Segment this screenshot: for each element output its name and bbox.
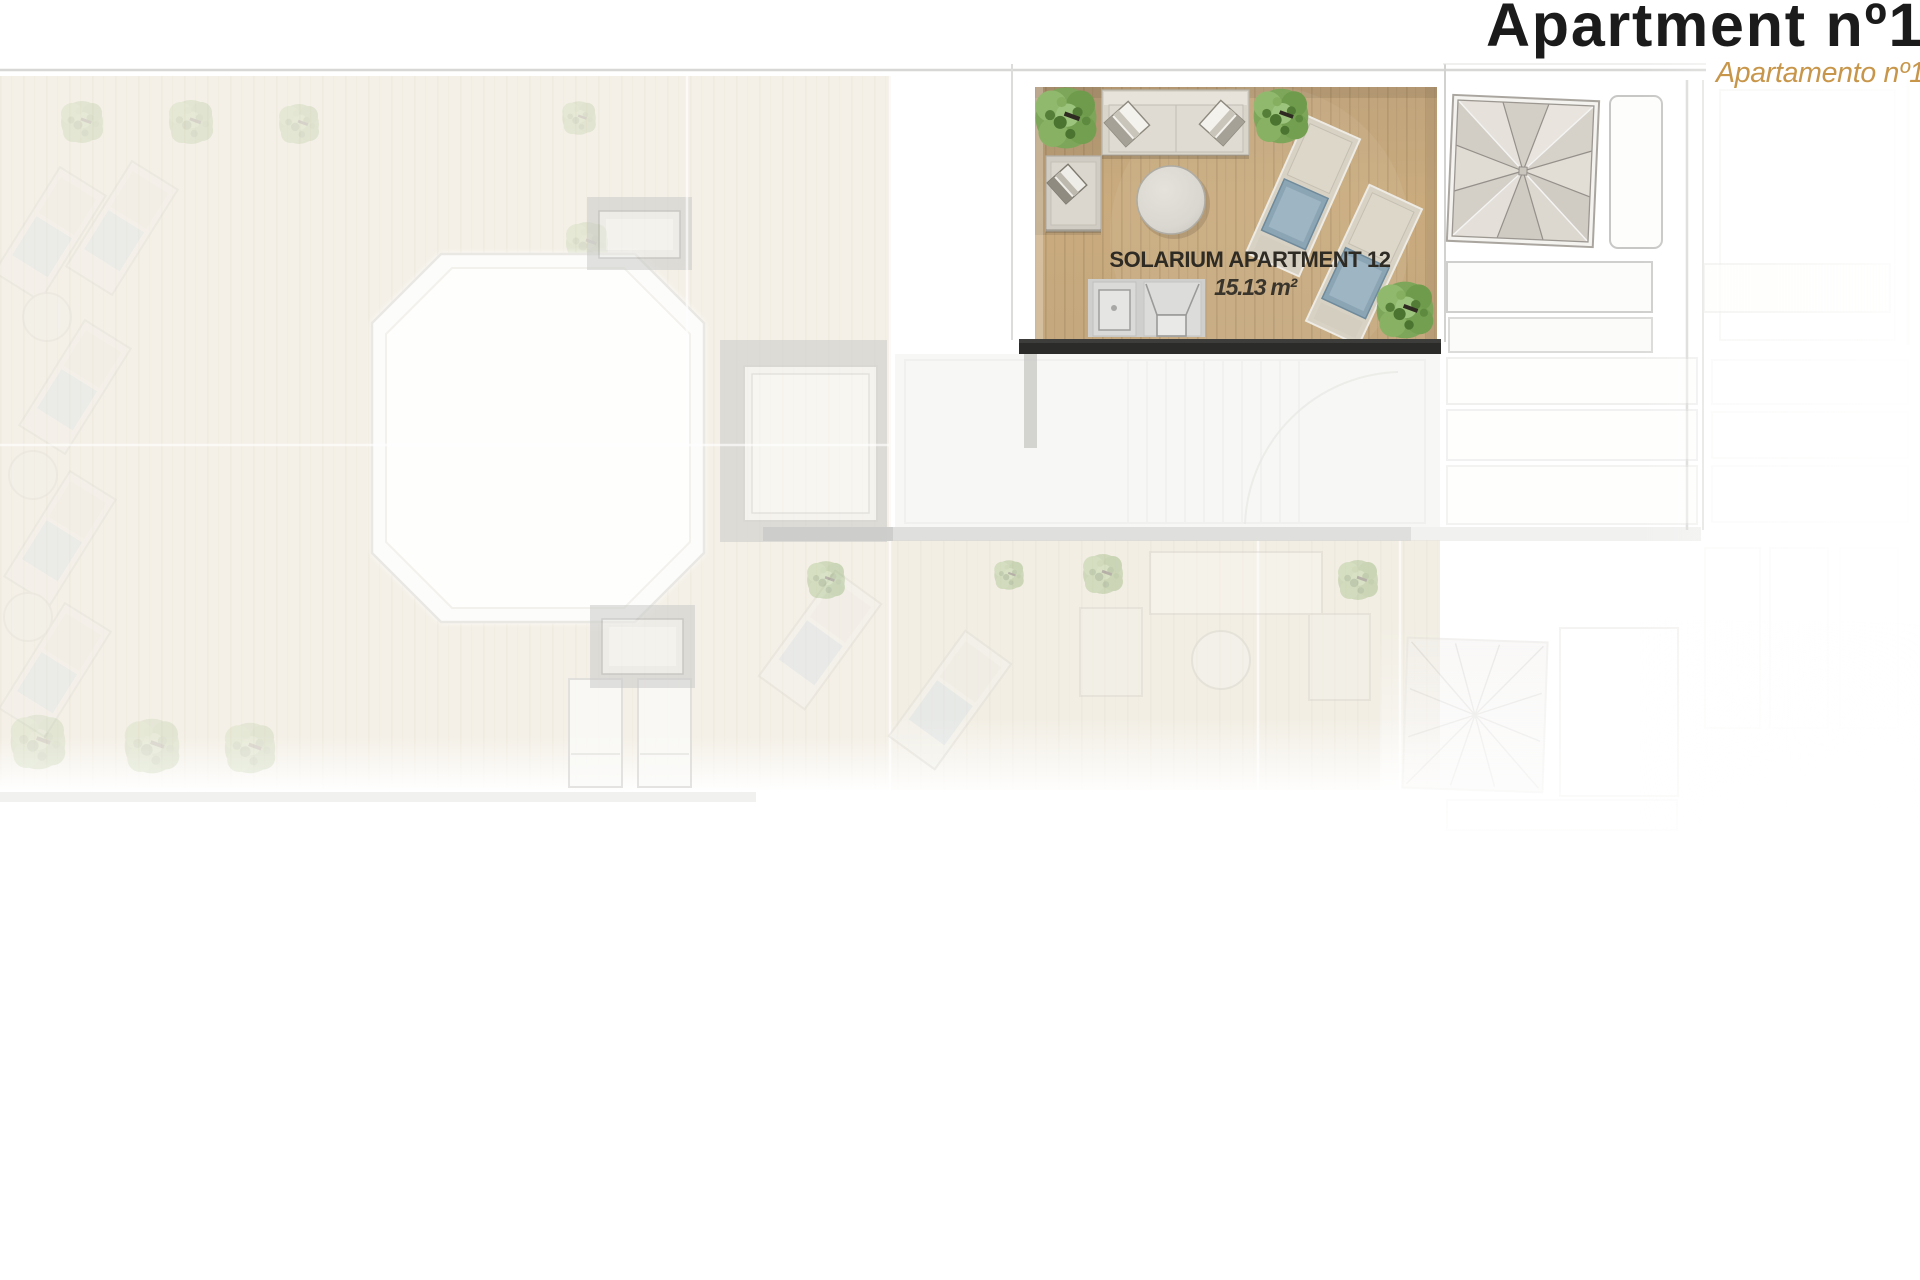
- svg-text:Apartamento nº12: Apartamento nº12: [1714, 57, 1920, 89]
- svg-text:Apartment nº12: Apartment nº12: [1486, 0, 1920, 59]
- svg-text:SOLARIUM APARTMENT 12: SOLARIUM APARTMENT 12: [1109, 247, 1390, 272]
- svg-text:15.13 m²: 15.13 m²: [1214, 274, 1298, 300]
